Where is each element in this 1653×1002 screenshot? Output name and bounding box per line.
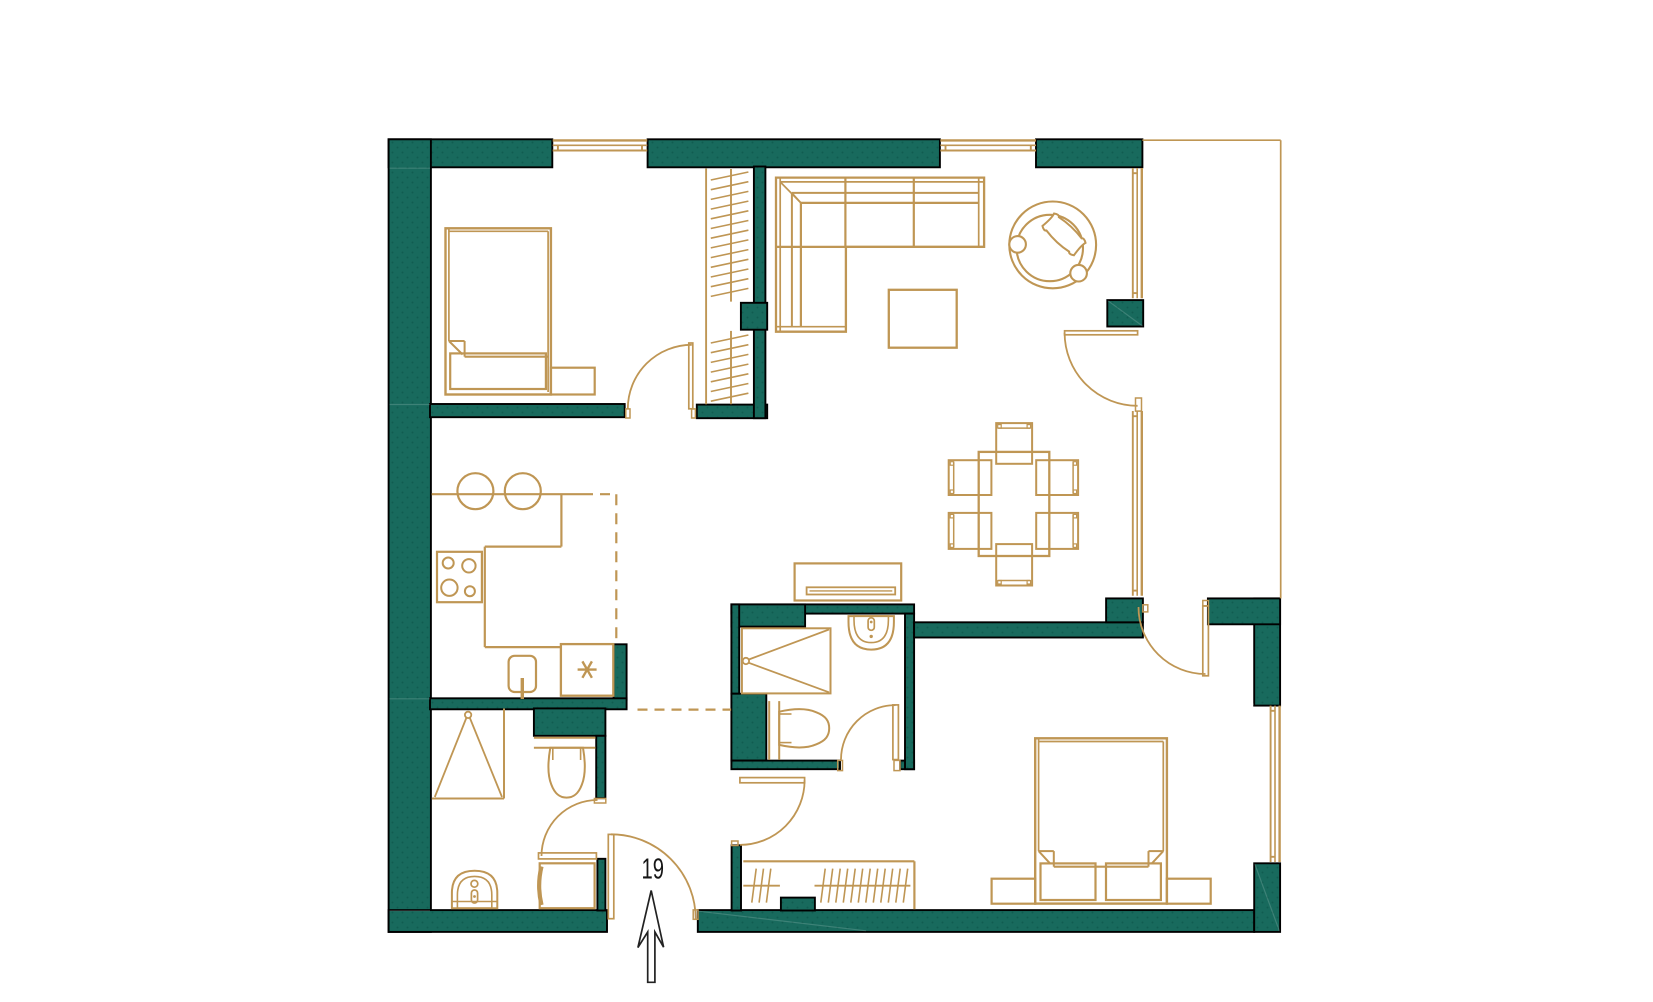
svg-text:19: 19	[641, 853, 664, 885]
